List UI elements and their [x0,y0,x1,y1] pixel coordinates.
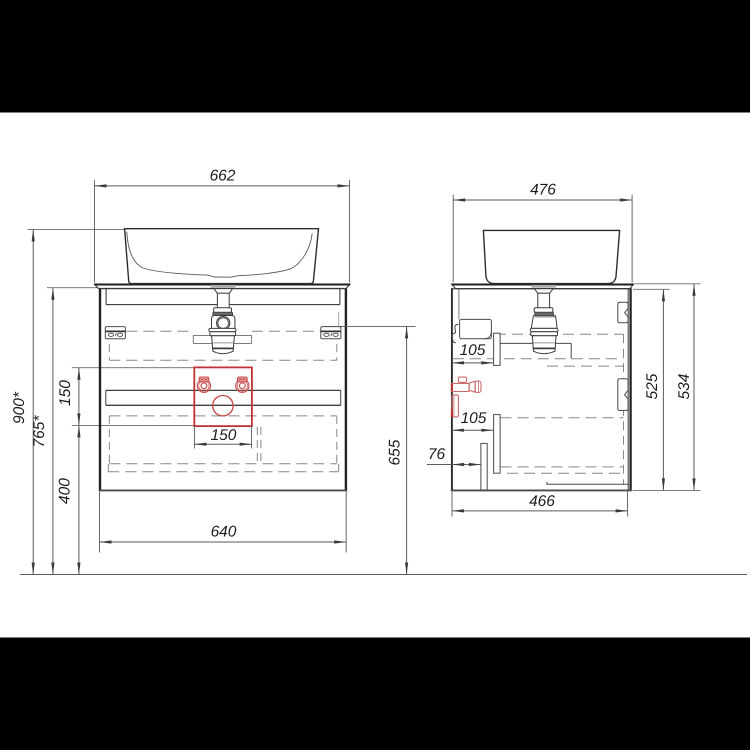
svg-text:900*: 900* [11,391,28,424]
svg-text:525: 525 [644,373,661,399]
svg-text:105: 105 [461,410,487,427]
svg-text:476: 476 [530,182,556,199]
svg-text:466: 466 [529,493,555,510]
svg-text:655: 655 [387,439,404,465]
svg-text:765*: 765* [31,415,48,448]
svg-text:534: 534 [676,373,693,399]
svg-text:640: 640 [211,524,237,541]
svg-text:150: 150 [211,427,237,444]
svg-text:105: 105 [460,342,486,359]
svg-text:76: 76 [428,446,446,463]
svg-text:150: 150 [57,380,74,406]
svg-text:662: 662 [210,168,236,185]
svg-text:400: 400 [57,478,74,504]
